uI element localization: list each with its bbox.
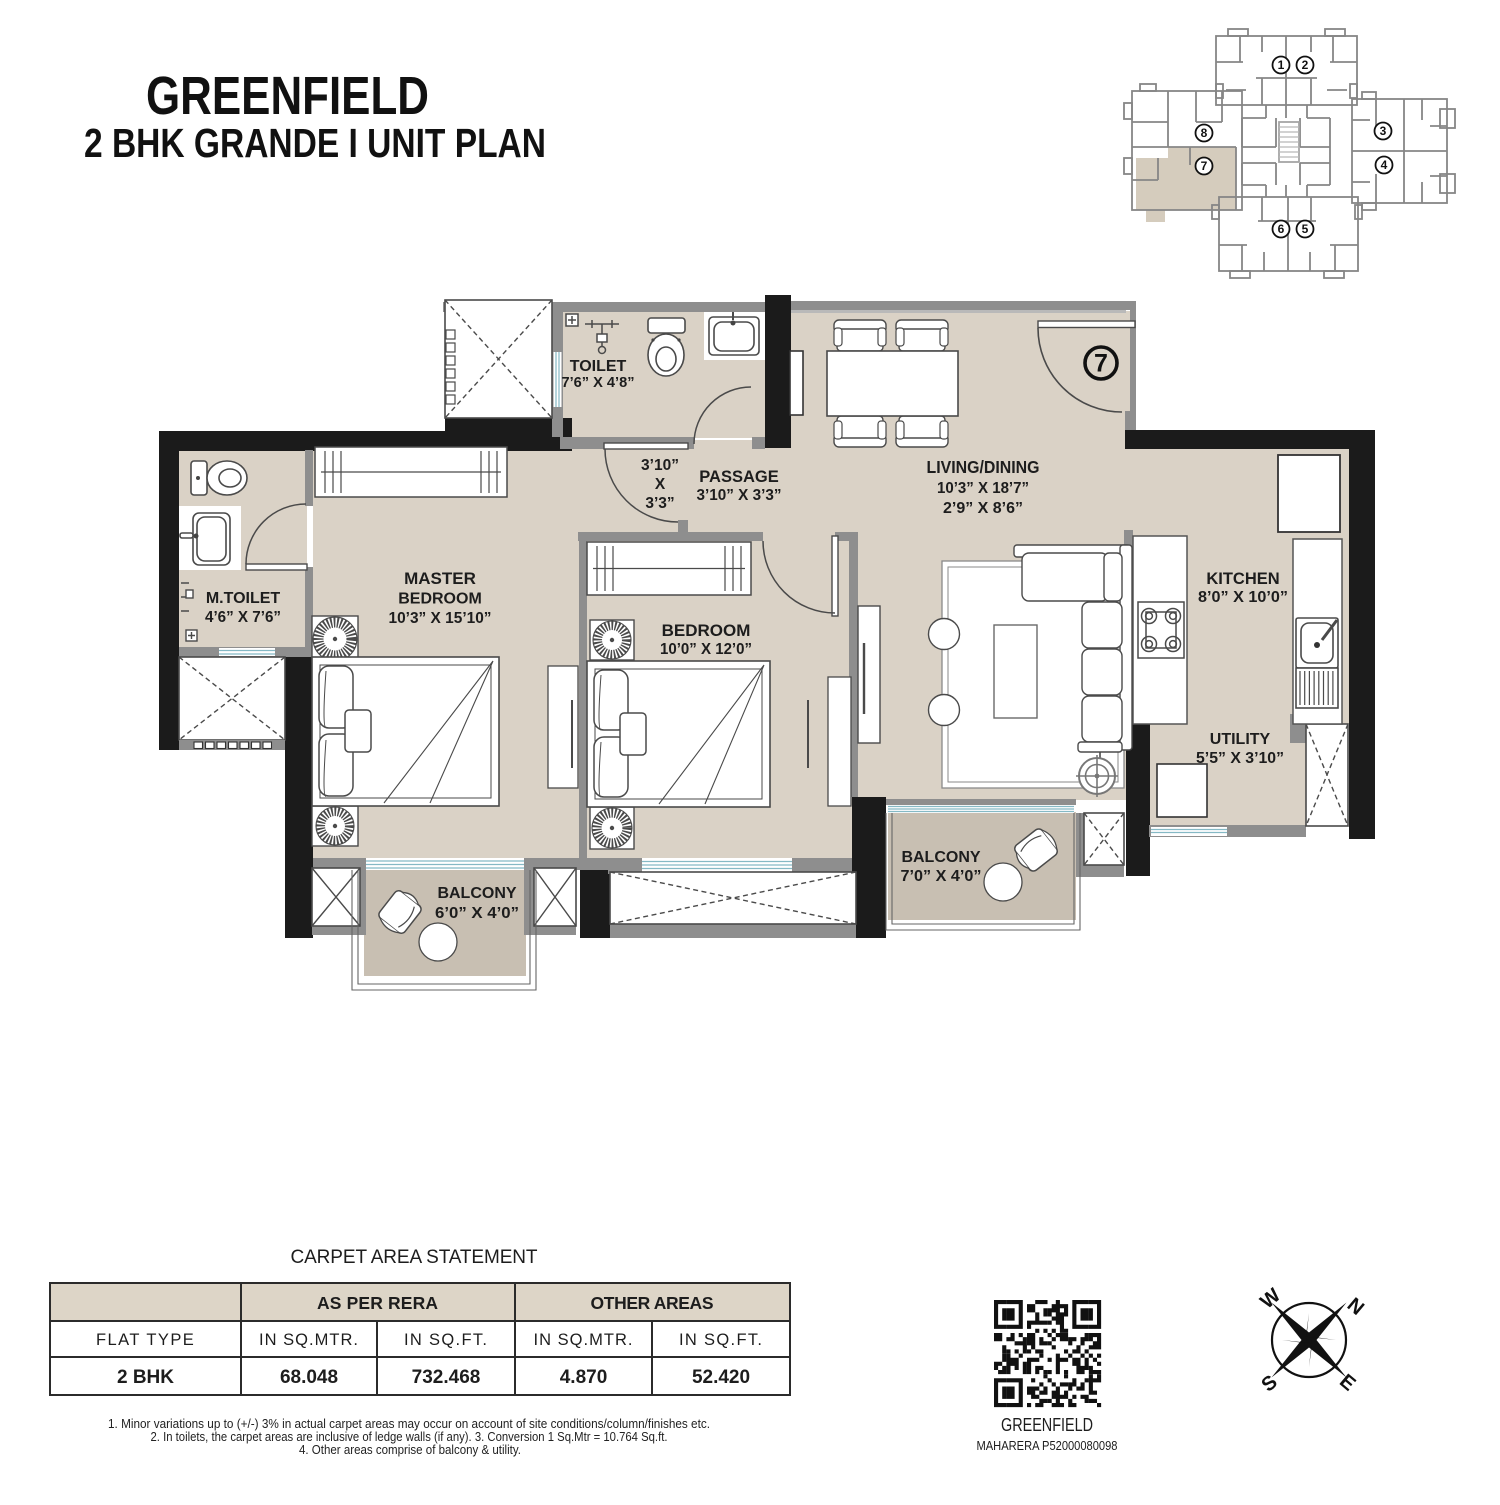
- svg-text:UTILITY: UTILITY: [1210, 731, 1271, 748]
- svg-text:6’0” X 4’0”: 6’0” X 4’0”: [435, 905, 519, 922]
- svg-text:LIVING/DINING: LIVING/DINING: [927, 457, 1040, 477]
- svg-text:MASTER: MASTER: [404, 569, 476, 588]
- svg-text:M.TOILET: M.TOILET: [206, 590, 281, 607]
- svg-text:8: 8: [1201, 126, 1208, 140]
- svg-text:X: X: [655, 476, 666, 493]
- svg-text:BEDROOM: BEDROOM: [398, 591, 482, 608]
- svg-text:7’6” X 4’8”: 7’6” X 4’8”: [562, 374, 635, 391]
- svg-text:3: 3: [1380, 124, 1387, 138]
- svg-text:7’0” X 4’0”: 7’0” X 4’0”: [901, 868, 982, 885]
- svg-text:2 BHK GRANDE I UNIT PLAN: 2 BHK GRANDE I UNIT PLAN: [84, 120, 546, 166]
- svg-text:2. In toilets, the carpet area: 2. In toilets, the carpet areas are incl…: [151, 1430, 668, 1444]
- svg-text:1. Minor variations up to (+/-: 1. Minor variations up to (+/-) 3% in ac…: [108, 1417, 710, 1431]
- svg-text:4.870: 4.870: [560, 1367, 608, 1388]
- svg-text:4: 4: [1381, 158, 1388, 172]
- svg-text:TOILET: TOILET: [570, 358, 627, 375]
- svg-text:BALCONY: BALCONY: [437, 885, 516, 902]
- svg-text:6: 6: [1278, 222, 1285, 236]
- svg-text:7: 7: [1201, 159, 1208, 173]
- svg-text:GREENFIELD: GREENFIELD: [146, 66, 429, 126]
- svg-text:MAHARERA P52000080098: MAHARERA P52000080098: [977, 1438, 1118, 1453]
- svg-text:1: 1: [1278, 58, 1285, 72]
- svg-text:KITCHEN: KITCHEN: [1206, 570, 1279, 588]
- svg-text:CARPET AREA STATEMENT: CARPET AREA STATEMENT: [291, 1247, 540, 1268]
- svg-text:4’6” X 7’6”: 4’6” X 7’6”: [205, 609, 281, 626]
- svg-text:7: 7: [1094, 350, 1108, 378]
- svg-text:5: 5: [1302, 222, 1309, 236]
- svg-text:GREENFIELD: GREENFIELD: [1001, 1415, 1093, 1435]
- svg-text:IN SQ.FT.: IN SQ.FT.: [679, 1331, 763, 1349]
- svg-text:3’3”: 3’3”: [645, 495, 674, 512]
- svg-text:3’10”: 3’10”: [641, 457, 679, 474]
- svg-text:IN SQ.MTR.: IN SQ.MTR.: [534, 1331, 634, 1349]
- svg-text:IN SQ.MTR.: IN SQ.MTR.: [259, 1331, 359, 1349]
- svg-text:IN SQ.FT.: IN SQ.FT.: [404, 1331, 488, 1349]
- svg-text:52.420: 52.420: [692, 1367, 750, 1388]
- svg-text:8’0” X 10’0”: 8’0” X 10’0”: [1198, 589, 1288, 606]
- svg-text:BEDROOM: BEDROOM: [662, 621, 751, 640]
- svg-text:2’9” X 8’6”: 2’9” X 8’6”: [943, 500, 1023, 517]
- svg-text:732.468: 732.468: [412, 1367, 481, 1388]
- svg-text:2: 2: [1302, 58, 1309, 72]
- svg-text:10’3” X 18’7”: 10’3” X 18’7”: [937, 480, 1029, 497]
- svg-text:2 BHK: 2 BHK: [117, 1367, 174, 1388]
- svg-text:AS PER RERA: AS PER RERA: [317, 1293, 439, 1313]
- svg-text:3’10” X 3’3”: 3’10” X 3’3”: [697, 487, 782, 504]
- svg-text:10’0” X 12’0”: 10’0” X 12’0”: [660, 641, 752, 658]
- svg-text:10’3” X 15’10”: 10’3” X 15’10”: [389, 610, 492, 627]
- svg-text:68.048: 68.048: [280, 1367, 338, 1388]
- svg-text:PASSAGE: PASSAGE: [699, 468, 778, 486]
- svg-text:5’5” X 3’10”: 5’5” X 3’10”: [1196, 750, 1284, 767]
- svg-text:OTHER AREAS: OTHER AREAS: [591, 1293, 715, 1313]
- svg-text:BALCONY: BALCONY: [901, 849, 980, 866]
- svg-text:FLAT TYPE: FLAT TYPE: [96, 1331, 195, 1349]
- svg-text:4. Other areas comprise of bal: 4. Other areas comprise of balcony & uti…: [299, 1443, 521, 1457]
